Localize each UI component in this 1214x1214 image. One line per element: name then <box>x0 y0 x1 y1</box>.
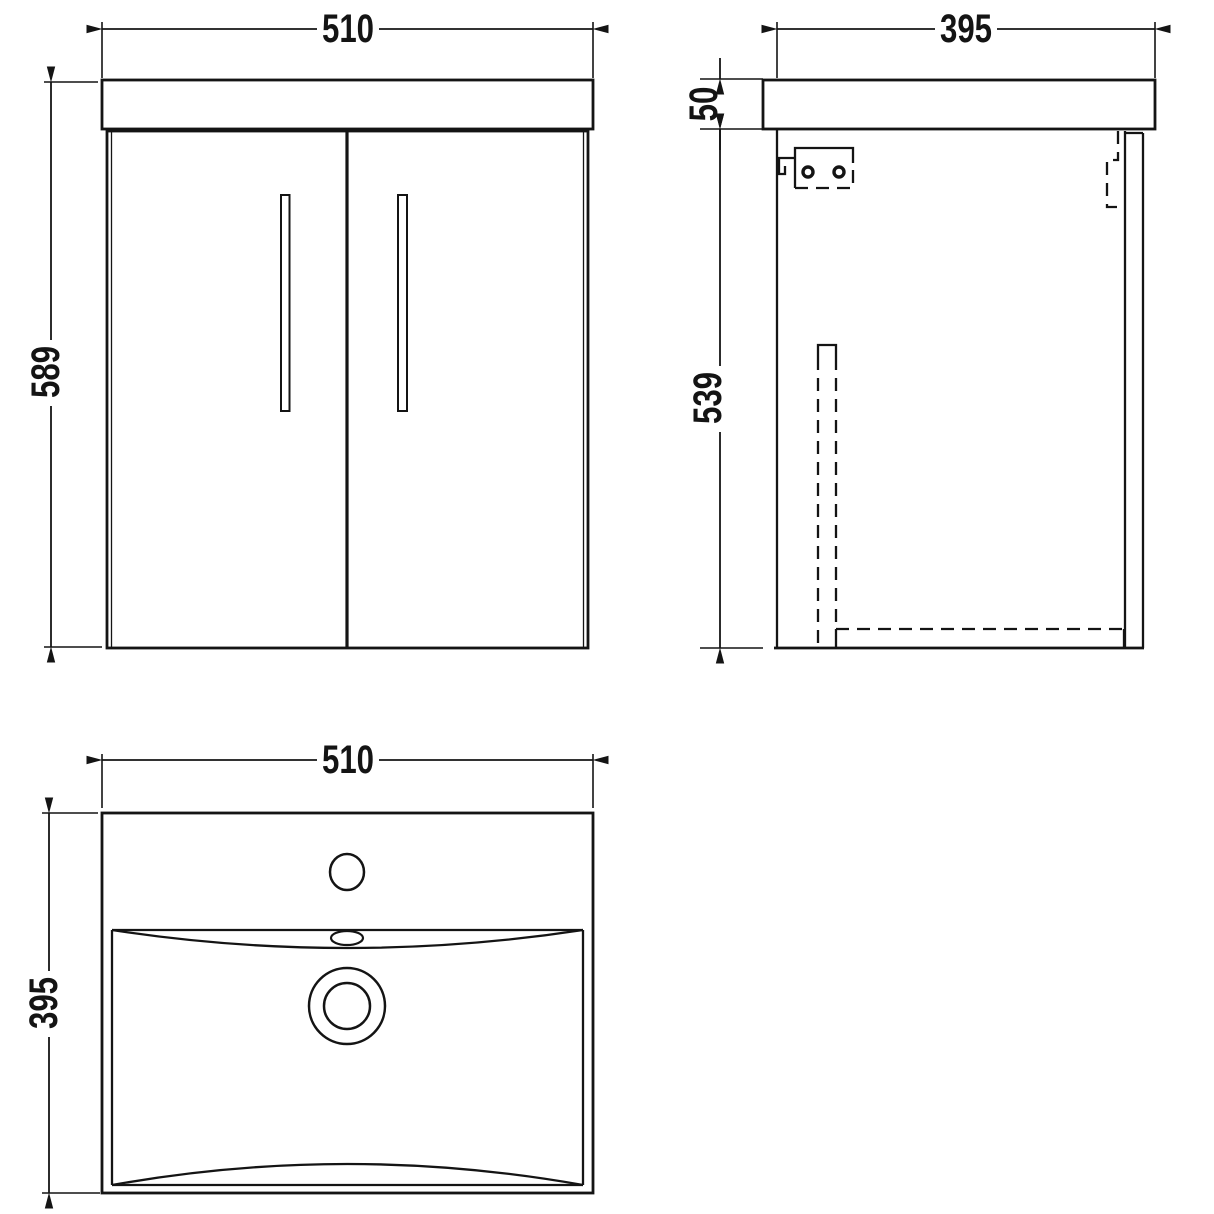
front-left-door-handle <box>281 195 290 411</box>
plan-depth-label: 395 <box>21 977 66 1029</box>
front-width-label: 510 <box>322 6 374 51</box>
drawing-background <box>0 0 1214 1214</box>
front-height-label: 589 <box>23 346 68 398</box>
side-depth-label: 395 <box>940 6 992 51</box>
technical-drawing-page: 510 589 <box>0 0 1214 1214</box>
plan-width-label: 510 <box>322 737 374 782</box>
side-worktop-thickness-label: 50 <box>681 87 726 122</box>
front-right-door-handle <box>398 195 407 411</box>
vanity-unit-technical-drawing: 510 589 <box>0 0 1214 1214</box>
side-body-height-label: 539 <box>685 372 730 424</box>
